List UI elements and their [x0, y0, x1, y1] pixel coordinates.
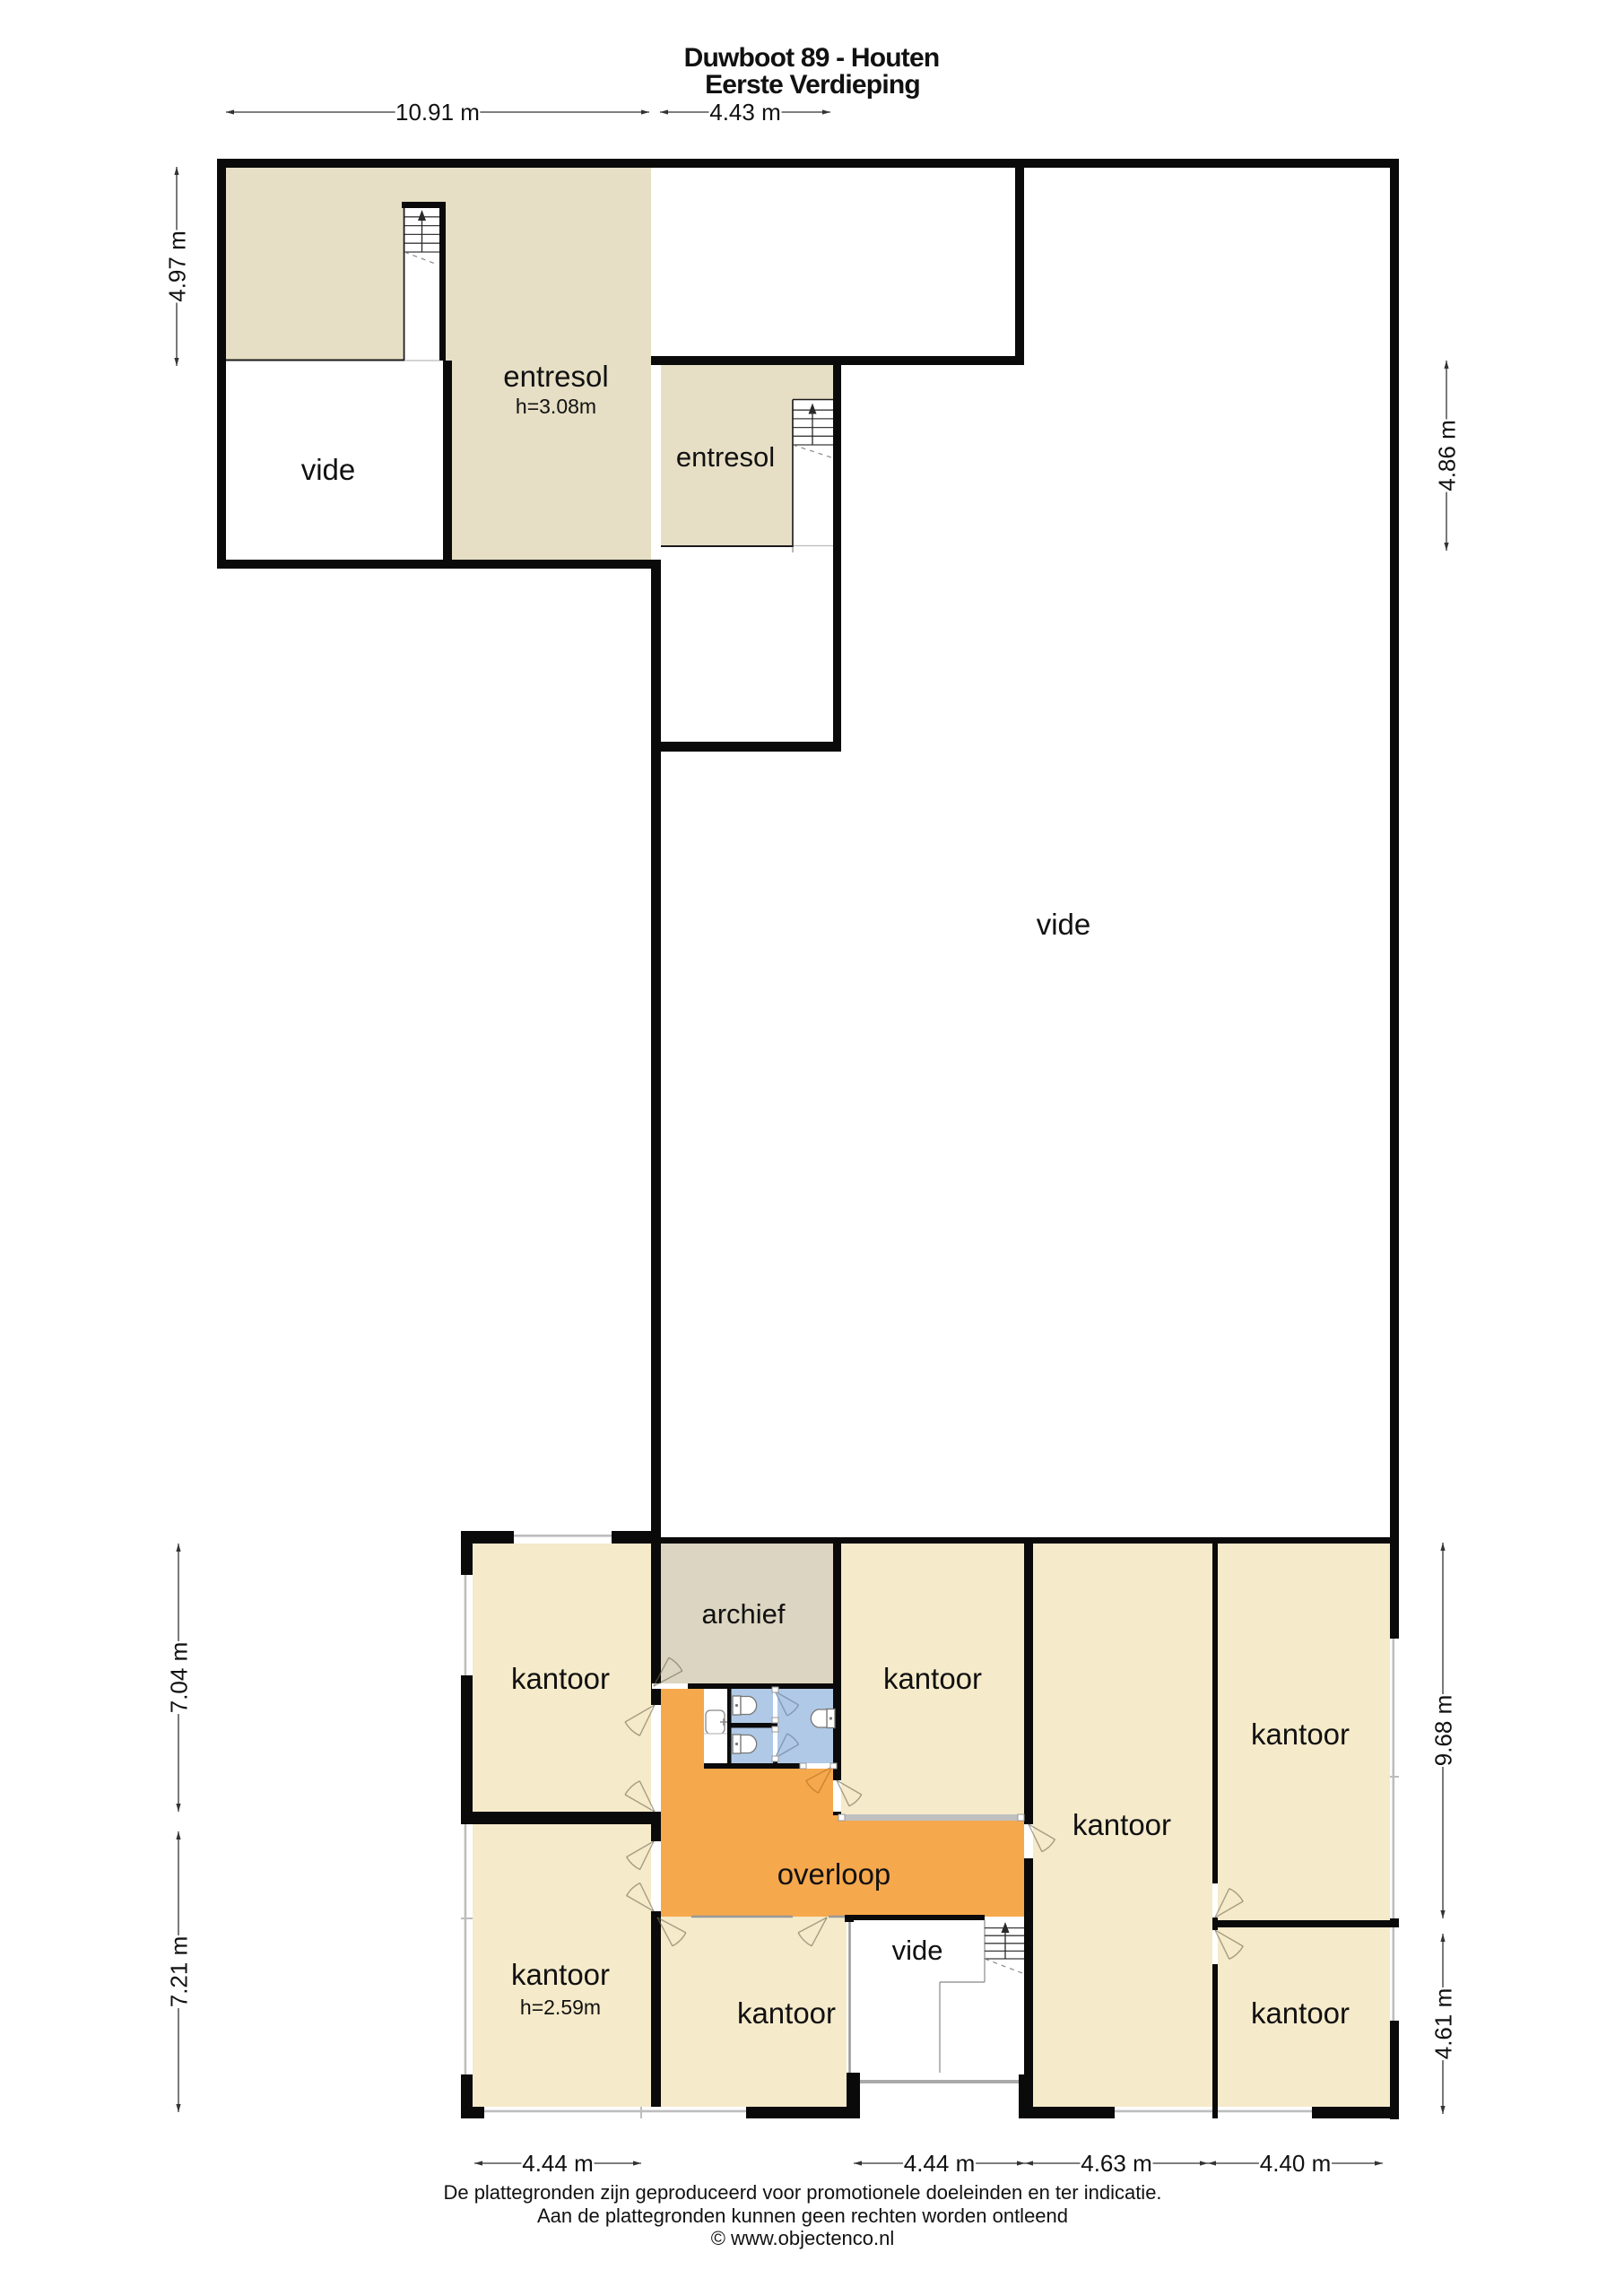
svg-text:kantoor: kantoor — [1073, 1808, 1171, 1841]
svg-text:4.63 m: 4.63 m — [1081, 2150, 1152, 2177]
svg-text:4.86 m: 4.86 m — [1433, 420, 1460, 491]
svg-text:archief: archief — [701, 1598, 785, 1630]
svg-text:Eerste Verdieping: Eerste Verdieping — [705, 70, 920, 100]
svg-text:7.04 m: 7.04 m — [165, 1642, 192, 1714]
svg-text:Duwboot 89 - Houten: Duwboot 89 - Houten — [684, 43, 940, 73]
svg-text:overloop: overloop — [777, 1857, 891, 1891]
svg-text:De plattegronden zijn geproduc: De plattegronden zijn geproduceerd voor … — [443, 2181, 1161, 2204]
svg-text:h=2.59m: h=2.59m — [520, 1996, 601, 2019]
svg-text:9.68 m: 9.68 m — [1429, 1695, 1456, 1767]
svg-text:entresol: entresol — [676, 441, 775, 473]
svg-text:Aan de plattegronden kunnen ge: Aan de plattegronden kunnen geen rechten… — [537, 2205, 1068, 2227]
svg-text:entresol: entresol — [503, 360, 608, 393]
svg-text:4.43 m: 4.43 m — [709, 99, 781, 126]
svg-text:kantoor: kantoor — [737, 1996, 836, 2030]
svg-text:4.44 m: 4.44 m — [904, 2150, 976, 2177]
svg-text:4.44 m: 4.44 m — [522, 2150, 594, 2177]
svg-text:kantoor: kantoor — [511, 1958, 610, 1991]
svg-text:vide: vide — [892, 1935, 943, 1966]
svg-text:4.40 m: 4.40 m — [1260, 2150, 1332, 2177]
svg-text:vide: vide — [1037, 908, 1091, 941]
svg-text:vide: vide — [301, 453, 356, 486]
svg-text:kantoor: kantoor — [1251, 1996, 1350, 2030]
svg-text:4.61 m: 4.61 m — [1429, 1988, 1456, 2060]
svg-text:© www.objectenco.nl: © www.objectenco.nl — [711, 2227, 895, 2249]
svg-text:kantoor: kantoor — [1251, 1718, 1350, 1751]
svg-text:4.97 m: 4.97 m — [163, 230, 190, 302]
svg-text:kantoor: kantoor — [883, 1662, 982, 1695]
svg-text:kantoor: kantoor — [511, 1662, 610, 1695]
svg-text:10.91 m: 10.91 m — [395, 99, 480, 126]
svg-text:7.21 m: 7.21 m — [165, 1936, 192, 2008]
svg-text:h=3.08m: h=3.08m — [516, 395, 596, 418]
